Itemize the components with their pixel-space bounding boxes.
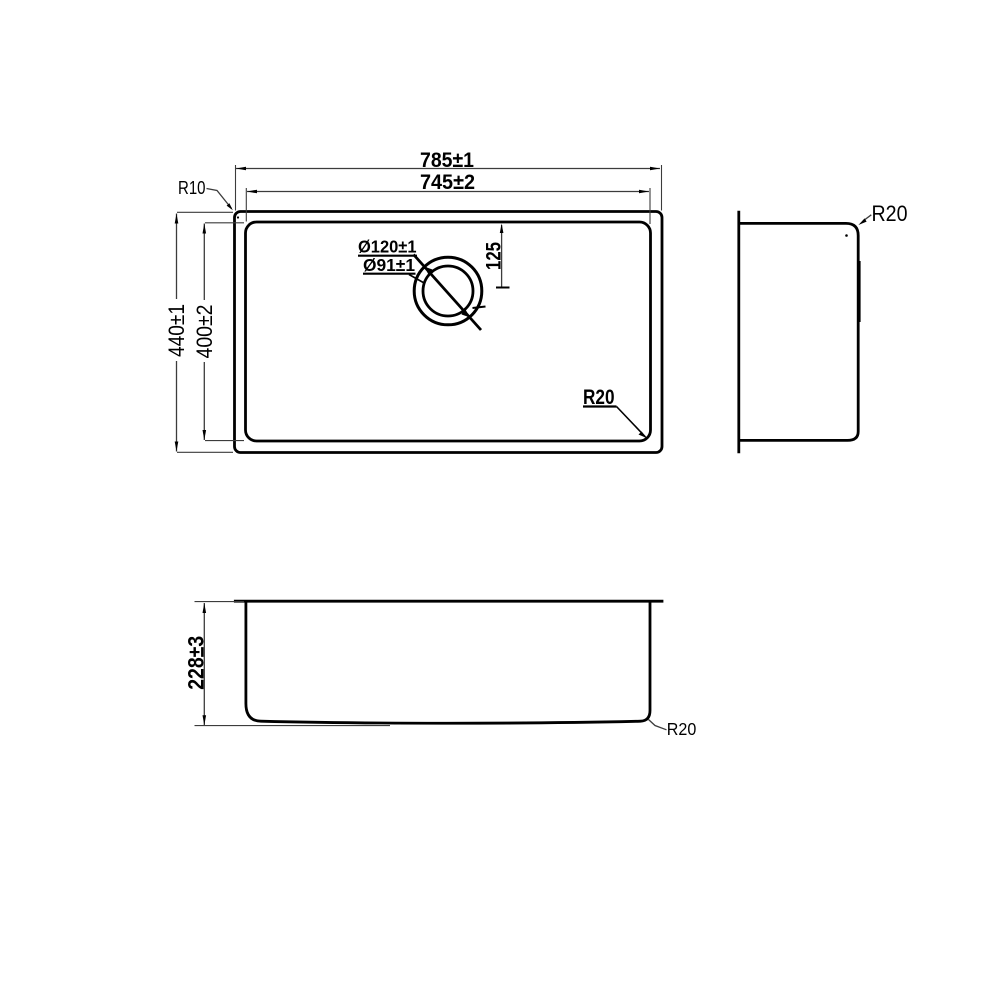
svg-text:440±1: 440±1 [164,304,189,357]
svg-text:Ø91±1: Ø91±1 [363,255,415,275]
svg-text:R10: R10 [178,177,206,198]
svg-text:R20: R20 [667,719,697,739]
svg-text:400±2: 400±2 [192,305,217,359]
svg-text:125: 125 [483,242,506,270]
svg-text:R20: R20 [872,201,908,226]
svg-text:745±2: 745±2 [420,170,475,194]
svg-text:Ø120±1: Ø120±1 [358,237,417,257]
svg-text:228±3: 228±3 [184,636,209,690]
